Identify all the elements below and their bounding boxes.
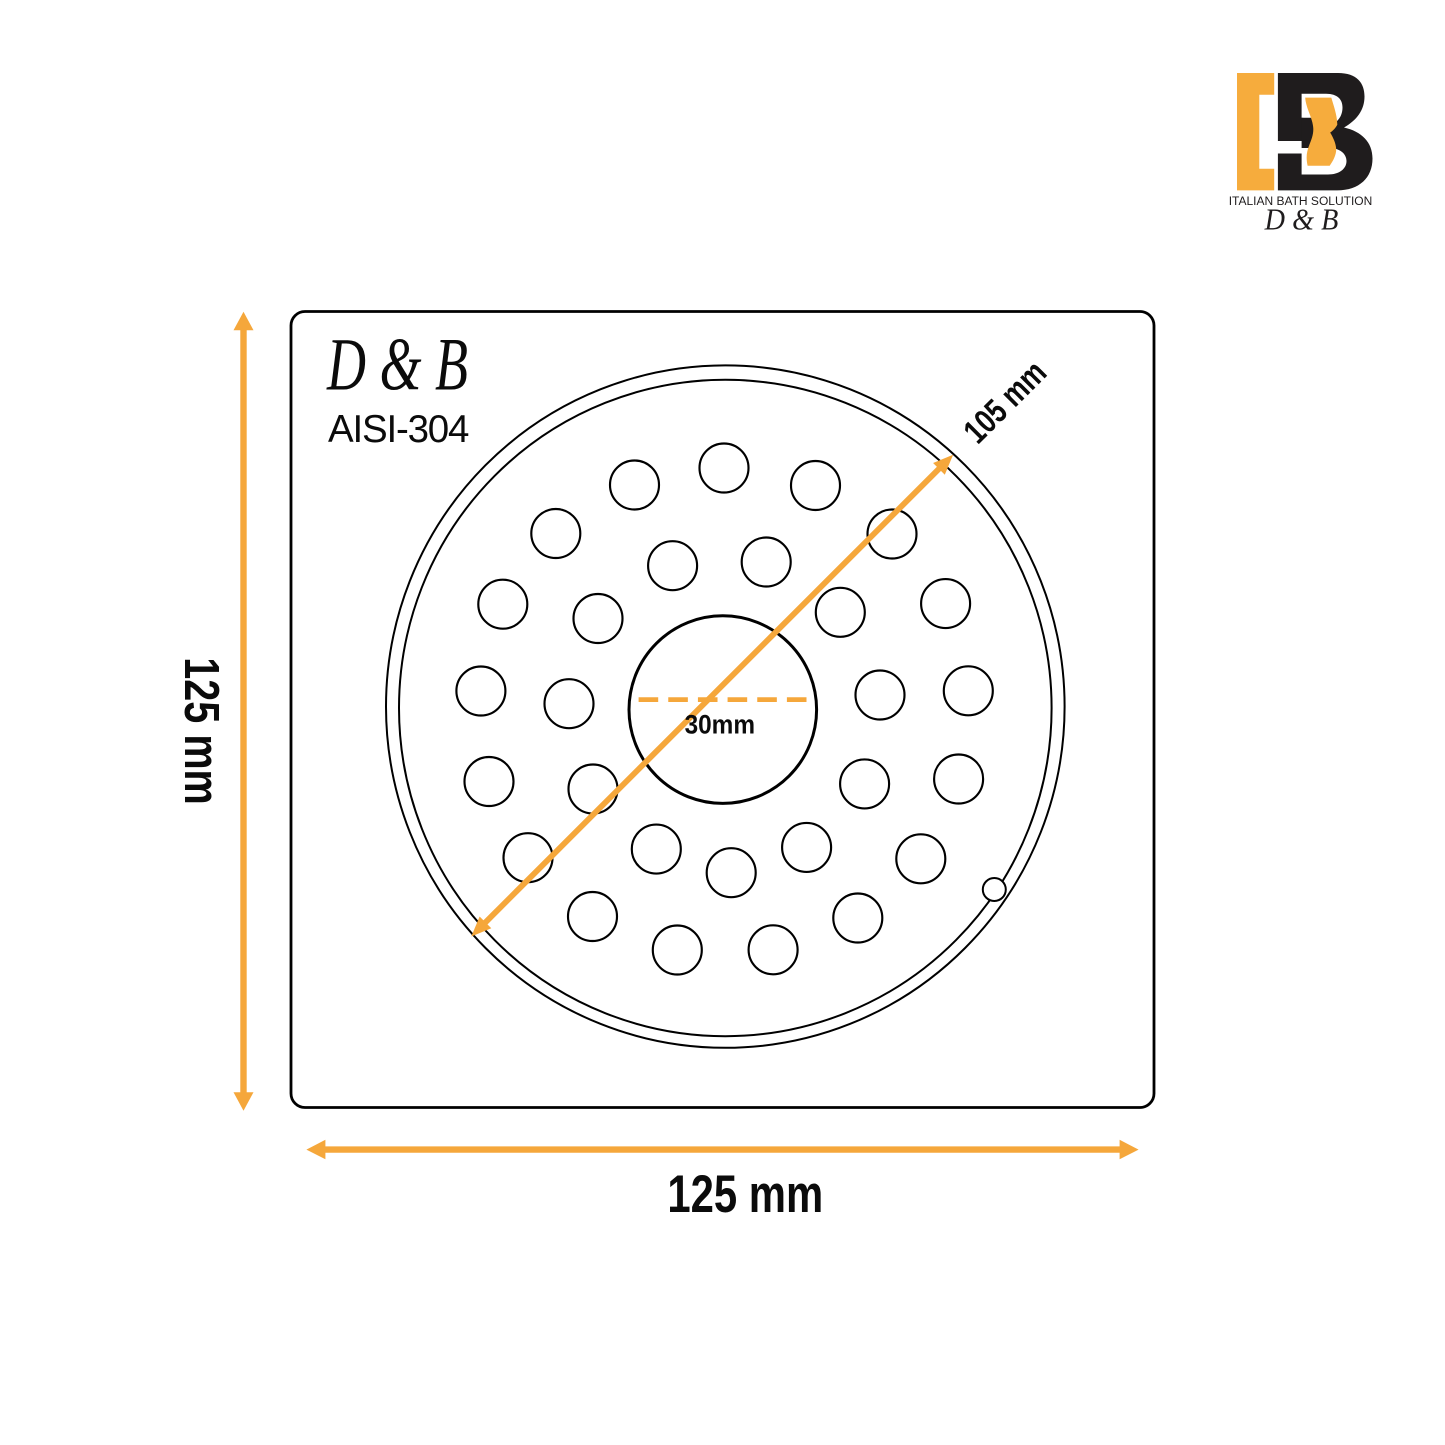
svg-text:30mm: 30mm: [685, 711, 755, 740]
svg-text:125 mm: 125 mm: [667, 1166, 823, 1225]
svg-text:D & B: D & B: [326, 324, 468, 407]
svg-text:125 mm: 125 mm: [174, 657, 229, 804]
svg-text:D & B: D & B: [1264, 203, 1339, 236]
svg-text:AISI-304: AISI-304: [328, 408, 469, 451]
